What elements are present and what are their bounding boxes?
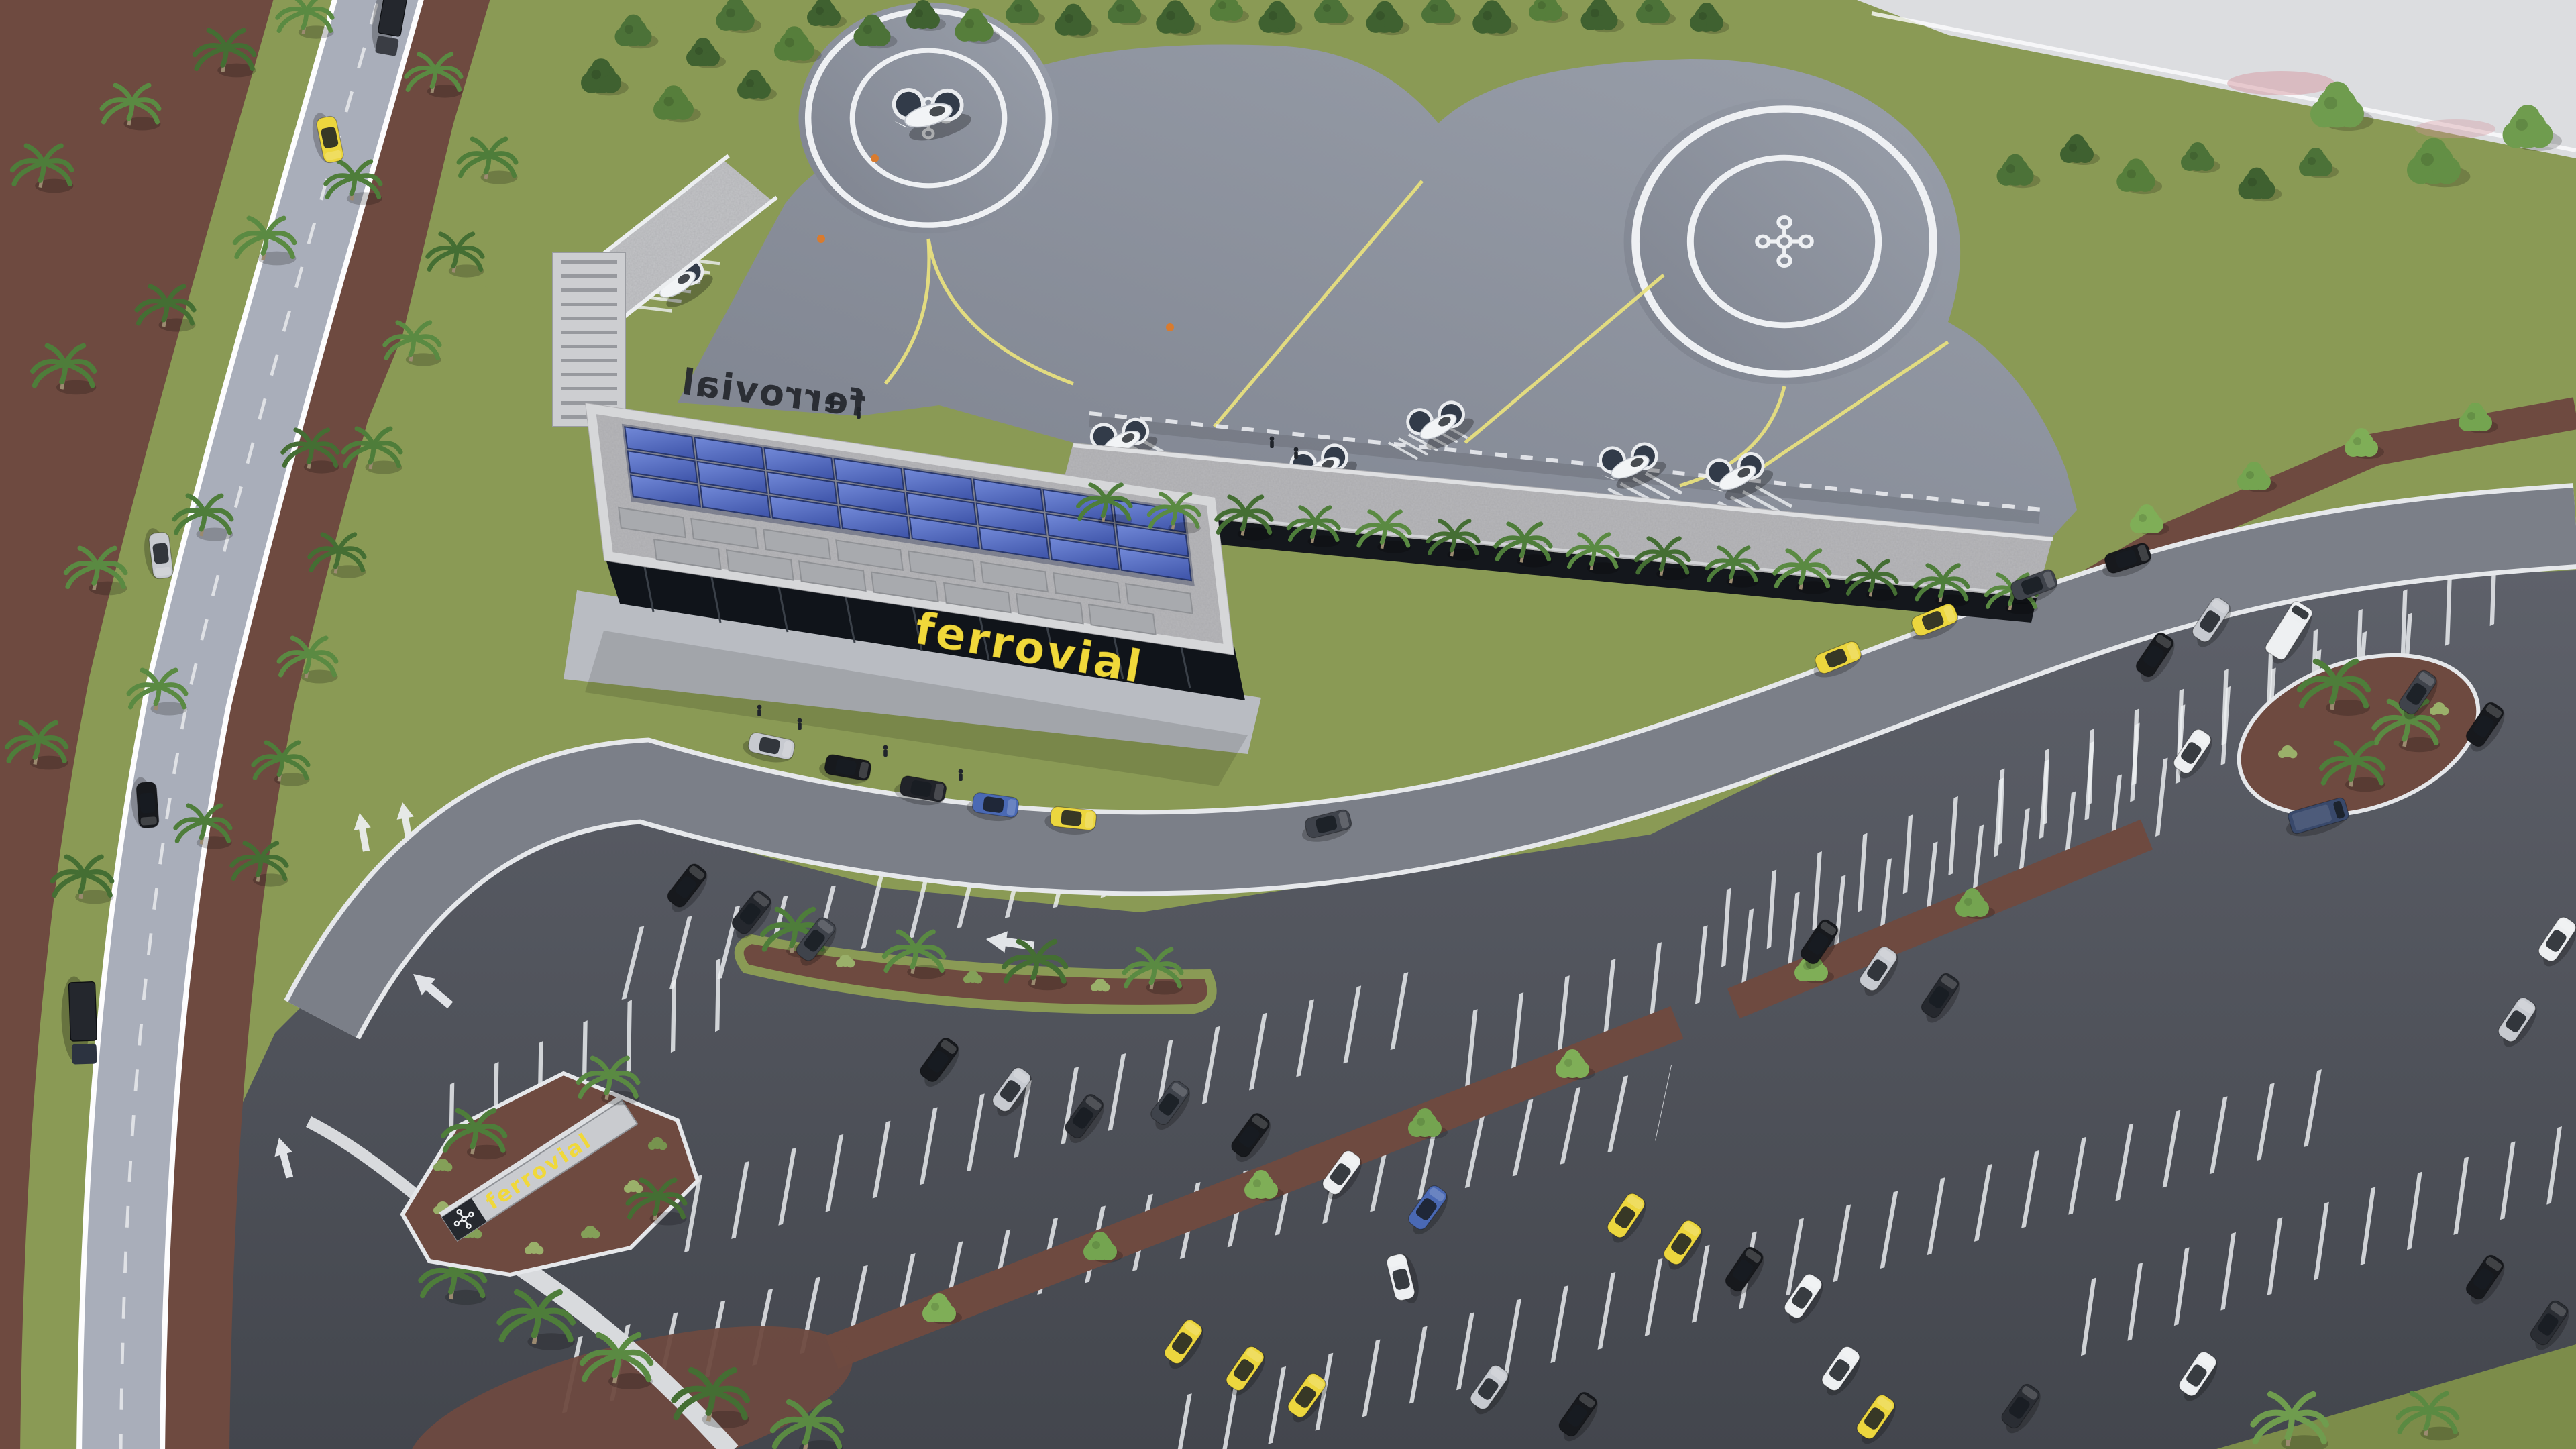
vertiport-aerial-rendering: ferrovial [0,0,2576,1449]
distant-buildings [2227,71,2334,95]
stair-tower [553,252,625,427]
distant-buildings [2415,119,2495,138]
helipad-east [1624,99,1945,384]
